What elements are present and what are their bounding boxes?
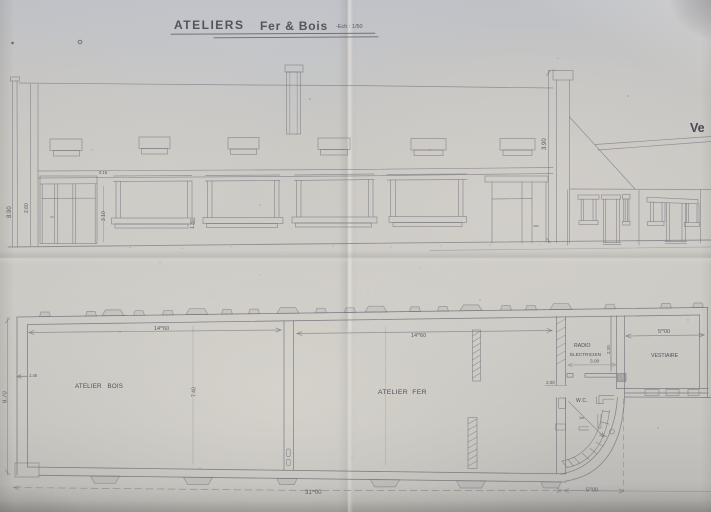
svg-text:3.90: 3.90 bbox=[542, 138, 548, 150]
svg-text:7.40: 7.40 bbox=[192, 387, 198, 397]
svg-text:8.90: 8.90 bbox=[7, 206, 13, 218]
svg-text:5m00: 5m00 bbox=[658, 328, 670, 335]
svg-text:ATELIER BOIS: ATELIER BOIS bbox=[75, 383, 123, 390]
svg-text:31m00: 31m00 bbox=[305, 489, 322, 496]
svg-text:5m00: 5m00 bbox=[586, 487, 598, 494]
svg-text:0.15: 0.15 bbox=[99, 170, 108, 175]
svg-text:W.C.: W.C. bbox=[576, 398, 588, 404]
svg-text:3.00: 3.00 bbox=[590, 359, 600, 365]
svg-text:-Ech : 1/50: -Ech : 1/50 bbox=[336, 24, 363, 30]
svg-text:2.00: 2.00 bbox=[546, 380, 555, 385]
svg-text:14m60: 14m60 bbox=[411, 332, 426, 339]
svg-text:2.10: 2.10 bbox=[606, 345, 611, 354]
svg-text:RADIO: RADIO bbox=[574, 343, 590, 349]
svg-text:ATELIERS: ATELIERS bbox=[174, 18, 244, 32]
svg-text:1.40: 1.40 bbox=[29, 373, 38, 378]
svg-text:1.30: 1.30 bbox=[190, 219, 196, 229]
svg-text:Fer & Bois: Fer & Bois bbox=[260, 19, 328, 33]
svg-text:1m: 1m bbox=[579, 416, 584, 420]
svg-text:VESTIAIRE: VESTIAIRE bbox=[651, 353, 679, 359]
svg-text:Ve: Ve bbox=[690, 121, 705, 135]
svg-text:2.60: 2.60 bbox=[24, 203, 30, 213]
svg-text:3.10: 3.10 bbox=[101, 211, 107, 221]
svg-text:ELECTRICIEN: ELECTRICIEN bbox=[570, 352, 601, 357]
svg-text:8.70: 8.70 bbox=[3, 391, 9, 403]
